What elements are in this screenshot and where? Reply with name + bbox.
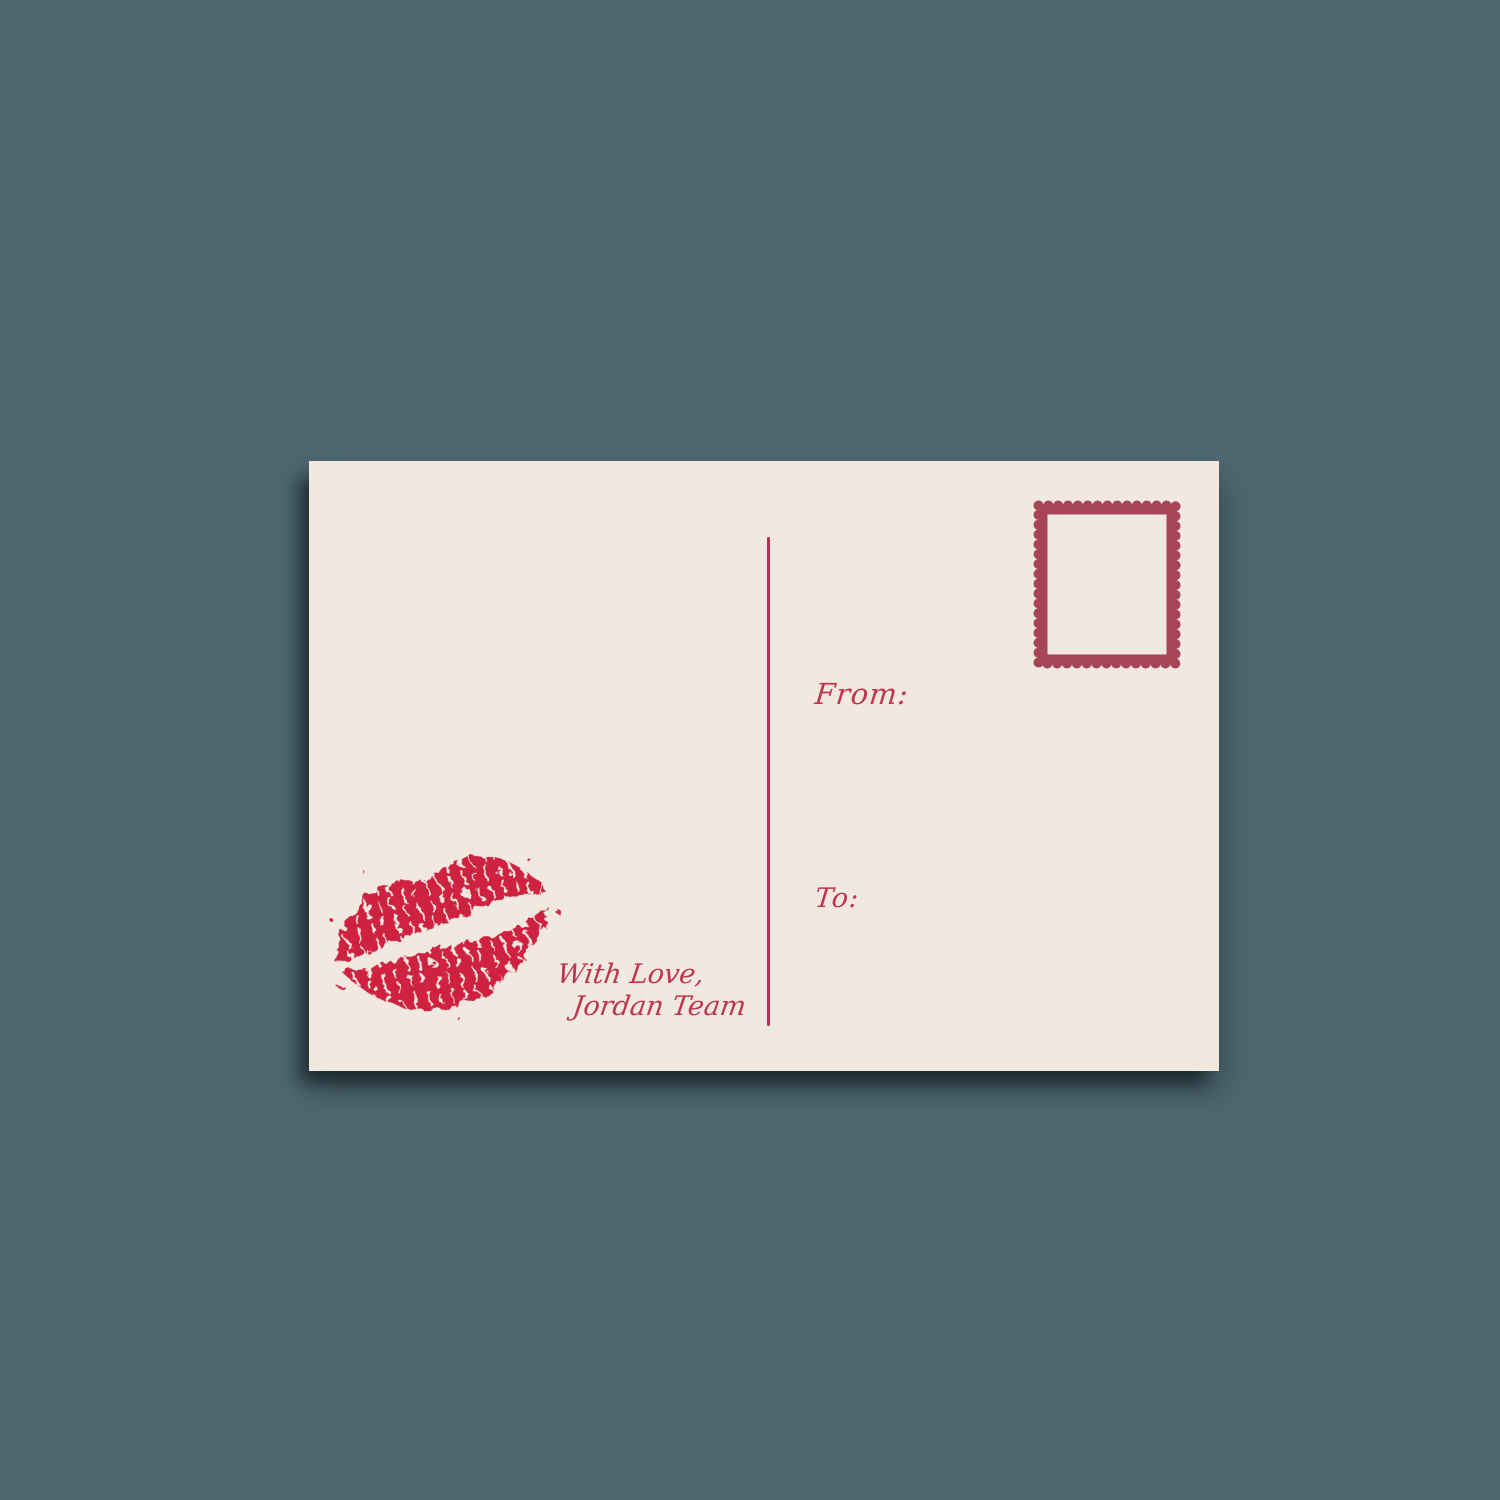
signature: With Love, Jordan Team <box>551 959 753 1023</box>
divider-line <box>767 537 770 1026</box>
signature-line2: Jordan Team <box>571 991 748 1023</box>
to-label: To: <box>813 883 861 914</box>
postcard-back: With Love, Jordan Team From: To: <box>309 461 1219 1071</box>
lipstick-kiss-icon <box>317 823 565 1031</box>
scene-background: With Love, Jordan Team From: To: <box>0 0 1500 1500</box>
postage-stamp-placeholder-icon <box>1031 498 1183 671</box>
signature-line1: With Love, <box>555 959 752 991</box>
from-label: From: <box>813 677 910 711</box>
